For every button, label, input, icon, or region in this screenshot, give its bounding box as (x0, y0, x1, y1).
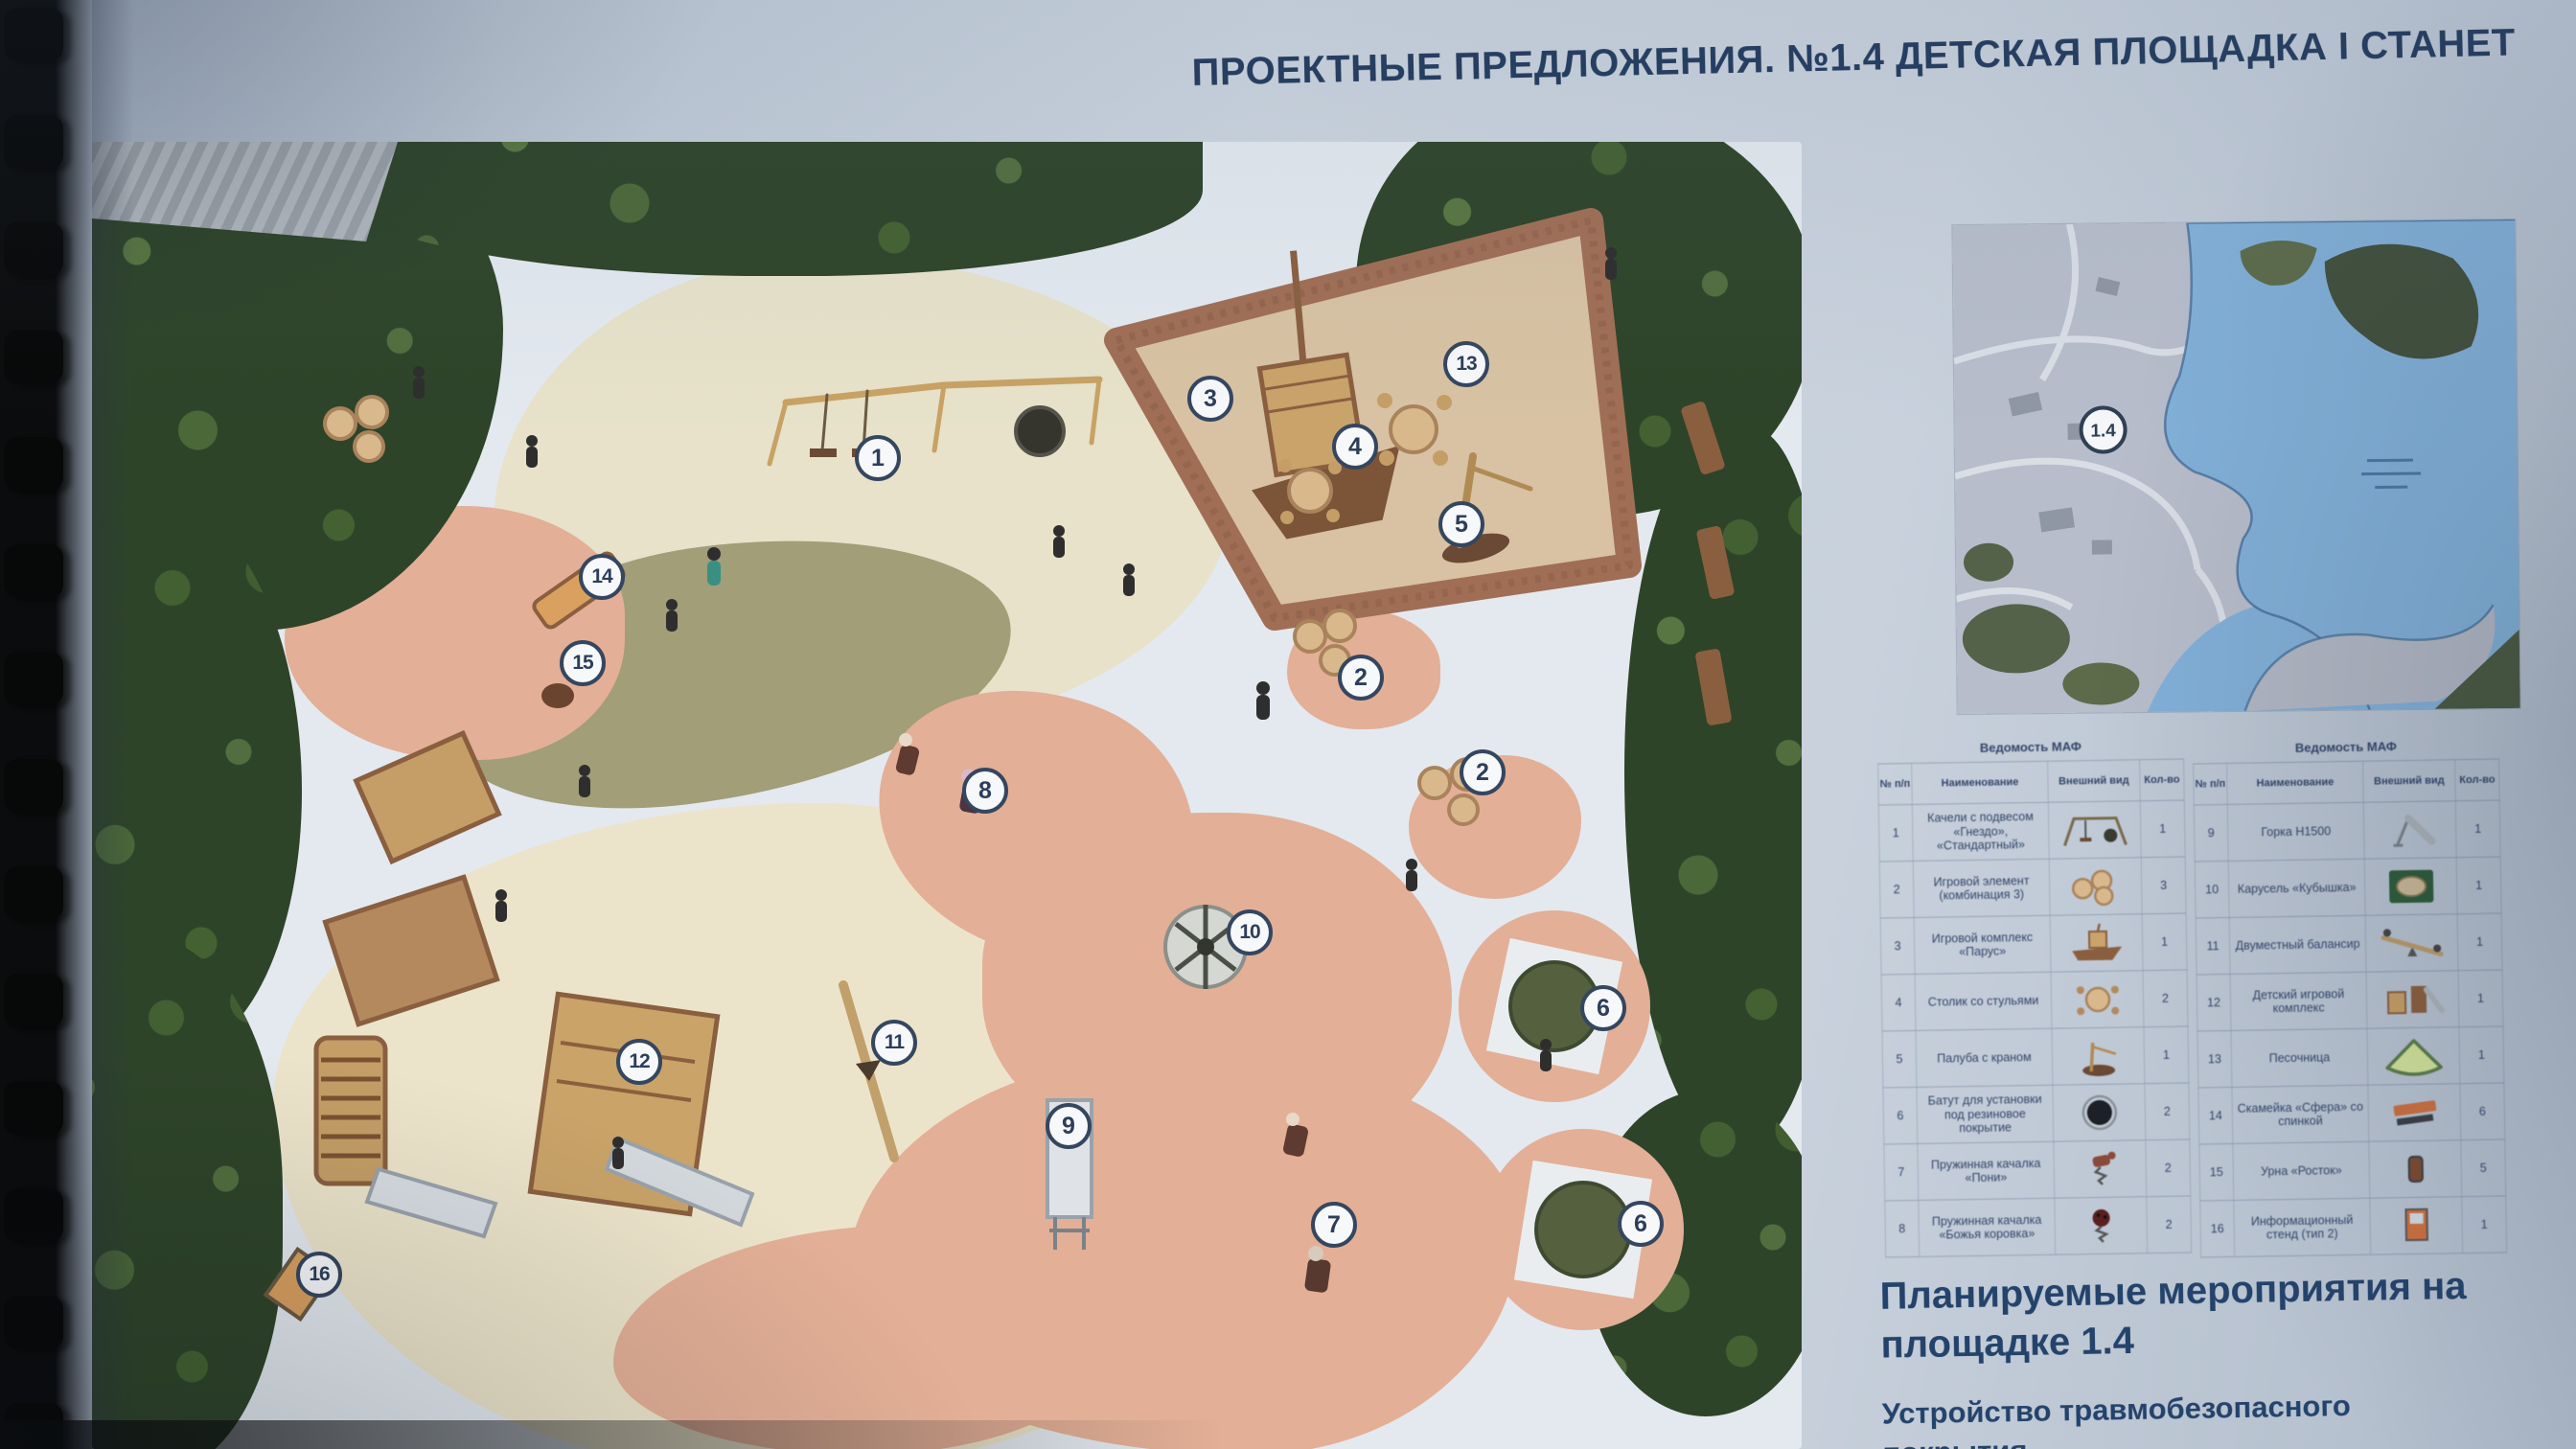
carousel-icon (2365, 858, 2458, 915)
spring-rockers (895, 733, 1332, 1294)
legend-row-3: 3Игровой комплекс «Парус»1 (1880, 912, 2188, 974)
col-qty: Кол-во (2455, 760, 2500, 801)
rocker-pony-icon (2054, 1140, 2147, 1198)
legend-item-qty: 1 (2458, 913, 2503, 970)
legend-item-name: Детский игровой комплекс (2231, 973, 2368, 1030)
spiral-binding (0, 0, 92, 1449)
legend-row-number: 7 (1883, 1144, 1919, 1201)
crane-icon (2053, 1027, 2146, 1085)
legend-row-14: 14Скамейка «Сфера» со спинкой6 (2197, 1082, 2505, 1143)
legend-item-name: Пружинная качалка «Пони» (1918, 1142, 2055, 1200)
wooden-play-complex (316, 733, 752, 1236)
slide-icon (2364, 801, 2457, 859)
legend-row-number: 10 (2195, 862, 2230, 918)
legend-row-1: 1Качели с подвесом «Гнездо», «Стандартны… (1878, 800, 2186, 862)
legend-item-qty: 1 (2144, 1026, 2189, 1083)
swing-set (770, 379, 1099, 464)
legend-item-name: Карусель «Кубышка» (2229, 860, 2366, 917)
legend-item-qty: 1 (2143, 913, 2188, 970)
spiral-coil (4, 652, 63, 705)
legend-item-qty: 1 (2459, 970, 2504, 1026)
table-body: 9Горка Н1500110Карусель «Кубышка»111Двум… (2194, 800, 2507, 1258)
legend-item-name: Столик со стульями (1916, 973, 2053, 1030)
legend-row-15: 15Урна «Росток»5 (2198, 1138, 2506, 1200)
plan-marker-8: 8 (962, 768, 1008, 814)
legend-row-6: 6Батут для установки под резиновое покры… (1882, 1082, 2190, 1143)
balance-beam (843, 985, 894, 1158)
planned-activities-item: Устройство травмобезопасного покрытия (1881, 1385, 2495, 1449)
plan-marker-9: 9 (1046, 1103, 1092, 1149)
legend-item-name: Двуместный балансир (2230, 916, 2367, 974)
legend-row-number: 13 (2197, 1031, 2233, 1088)
photographed-design-document-page: { "header": { "title": "ПРОЕКТНЫЕ ПРЕДЛО… (0, 0, 2576, 1449)
page-edge-shadow (92, 0, 134, 1449)
legend-item-qty: 1 (2456, 801, 2501, 858)
legend-item-name: Палуба с краном (1917, 1029, 2054, 1087)
legend-row-13: 13Песочница1 (2197, 1025, 2505, 1087)
legend-item-qty: 2 (2145, 1083, 2190, 1139)
legend-row-number: 14 (2197, 1088, 2233, 1144)
table-body: 1Качели с подвесом «Гнездо», «Стандартны… (1878, 800, 2192, 1258)
legend-item-name: Скамейка «Сфера» со спинкой (2232, 1086, 2369, 1143)
col-qty: Кол-во (2140, 760, 2185, 801)
plan-marker-1: 1 (855, 435, 901, 481)
legend-item-qty: 3 (2142, 858, 2187, 914)
legend-row-number: 6 (1882, 1088, 1918, 1144)
col-num: № п/п (2193, 764, 2228, 805)
legend-item-qty: 1 (2459, 1026, 2504, 1083)
spiral-coil (4, 115, 63, 169)
plan-marker-11: 11 (871, 1020, 917, 1066)
legend-item-qty: 2 (2146, 1139, 2191, 1196)
legend-row-number: 2 (1879, 862, 1915, 918)
spiral-coil (4, 866, 63, 920)
plan-marker-3: 3 (1187, 376, 1233, 422)
plan-marker-2: 2 (1460, 749, 1506, 795)
legend-item-qty: 1 (2141, 801, 2186, 858)
legend-row-number: 8 (1884, 1201, 1920, 1257)
legend-row-2: 2Игровой элемент (комбинация 3)3 (1879, 857, 2187, 918)
legend-item-qty: 2 (2147, 1196, 2192, 1253)
planned-activities-heading: Планируемые мероприятия на площадке 1.4 (1879, 1261, 2495, 1370)
seesaw-icon (2366, 914, 2459, 972)
plan-marker-12: 12 (616, 1039, 662, 1085)
ship-icon (2051, 914, 2144, 972)
bench-icon (2368, 1084, 2461, 1141)
legend-item-name: Информационный стенд (тип 2) (2234, 1199, 2371, 1256)
legend-item-name: Игровой элемент (комбинация 3) (1914, 860, 2051, 917)
complex-icon (2367, 971, 2460, 1028)
spiral-coil (4, 974, 63, 1027)
legend-item-name: Игровой комплекс «Парус» (1915, 916, 2052, 974)
spiral-coil (4, 1188, 63, 1242)
stand-icon (2370, 1197, 2463, 1254)
legend-item-qty: 2 (2144, 970, 2189, 1026)
location-map-image: 1.4 (1952, 219, 2519, 714)
location-map: 1.4 (1952, 219, 2519, 714)
legend-item-name: Горка Н1500 (2228, 803, 2365, 861)
legend-row-8: 8Пружинная качалка «Божья коровка»2 (1884, 1195, 2192, 1256)
col-num: № п/п (1877, 764, 1913, 805)
plan-marker-7: 7 (1311, 1202, 1357, 1248)
legend-item-qty: 5 (2461, 1139, 2506, 1196)
legend-row-number: 5 (1882, 1031, 1918, 1088)
maf-table-left: Ведомость МАФ № п/п Наименование Внешний… (1877, 738, 2192, 1260)
col-view: Внешний вид (2363, 760, 2456, 802)
legend-row-4: 4Столик со стульями2 (1881, 969, 2189, 1030)
spiral-coil (4, 544, 63, 598)
spiral-coil (4, 437, 63, 491)
plan-marker-16: 16 (296, 1252, 342, 1298)
legend-item-name: Песочница (2232, 1029, 2369, 1087)
spiral-coil (4, 330, 63, 383)
table-header-row: № п/п Наименование Внешний вид Кол-во (1877, 759, 2185, 805)
trampoline-icon (2053, 1084, 2146, 1141)
plan-marker-5: 5 (1438, 501, 1484, 547)
legend-item-qty: 1 (2462, 1196, 2507, 1253)
plan-marker-6: 6 (1580, 985, 1626, 1031)
plan-marker-6: 6 (1618, 1201, 1664, 1247)
plan-equipment-layer (81, 142, 1802, 1449)
plan-marker-4: 4 (1332, 424, 1378, 470)
legend-row-number: 11 (2196, 918, 2231, 975)
legend-row-7: 7Пружинная качалка «Пони»2 (1883, 1138, 2191, 1200)
legend-row-number: 9 (2194, 805, 2229, 862)
table-header-row: № п/п Наименование Внешний вид Кол-во (2193, 759, 2500, 805)
spiral-coil (4, 1081, 63, 1135)
playground-plan-render: 1223456678910111213141516 (81, 142, 1802, 1449)
legend-row-5: 5Палуба с краном1 (1882, 1025, 2190, 1087)
col-name: Наименование (2227, 762, 2364, 804)
col-name: Наименование (1912, 762, 2049, 804)
legend-item-qty: 6 (2460, 1083, 2505, 1139)
plan-marker-15: 15 (560, 640, 606, 686)
map-site-marker-label: 1.4 (2090, 421, 2116, 441)
urn (541, 683, 574, 708)
legend-row-number: 15 (2198, 1144, 2234, 1201)
plan-marker-10: 10 (1227, 909, 1273, 955)
legend-row-16: 16Информационный стенд (тип 2)1 (2199, 1195, 2507, 1256)
benches-right (1680, 401, 1735, 726)
legend-row-10: 10Карусель «Кубышка»1 (2195, 857, 2502, 918)
legend-row-number: 3 (1880, 918, 1916, 975)
drums-icon (2050, 858, 2143, 915)
legend-row-11: 11Двуместный балансир1 (2196, 912, 2503, 974)
page-title: ПРОЕКТНЫЕ ПРЕДЛОЖЕНИЯ. №1.4 ДЕТСКАЯ ПЛОЩ… (1035, 21, 2517, 98)
legend-item-name: Качели с подвесом «Гнездо», «Стандартный… (1913, 803, 2050, 861)
legend-row-9: 9Горка Н15001 (2194, 800, 2501, 862)
sandpit-icon (2368, 1027, 2461, 1085)
spiral-coil (4, 8, 63, 61)
legend-item-qty: 1 (2457, 858, 2502, 914)
legend-item-name: Батут для установки под резиновое покрыт… (1917, 1086, 2054, 1143)
legend-item-name: Урна «Росток» (2233, 1142, 2370, 1200)
plan-marker-2: 2 (1338, 655, 1384, 701)
plan-marker-14: 14 (579, 554, 625, 600)
legend-row-number: 12 (2196, 975, 2232, 1031)
sandbox-area (1116, 220, 1629, 618)
legend-row-number: 4 (1881, 975, 1917, 1031)
spiral-coil (4, 1296, 63, 1349)
spiral-coil (4, 222, 63, 276)
legend-row-12: 12Детский игровой комплекс1 (2196, 969, 2504, 1030)
ground-trampoline (1459, 910, 1684, 1330)
legend-item-name: Пружинная качалка «Божья коровка» (1919, 1199, 2056, 1256)
swing-icon (2049, 801, 2142, 859)
rocker-ladybug-icon (2055, 1197, 2148, 1254)
maf-table-right: Ведомость МАФ № п/п Наименование Внешний… (2193, 738, 2507, 1260)
desk-shadow (0, 1420, 1437, 1449)
col-view: Внешний вид (2048, 760, 2141, 802)
legend-row-number: 1 (1878, 805, 1914, 862)
urn-icon (2369, 1140, 2462, 1198)
planned-activities-block: Планируемые мероприятия на площадке 1.4 … (1879, 1261, 2496, 1449)
spiral-coil (4, 759, 63, 813)
legend-row-number: 16 (2199, 1201, 2235, 1257)
plan-marker-13: 13 (1443, 341, 1489, 387)
table-stools-icon (2052, 971, 2145, 1028)
